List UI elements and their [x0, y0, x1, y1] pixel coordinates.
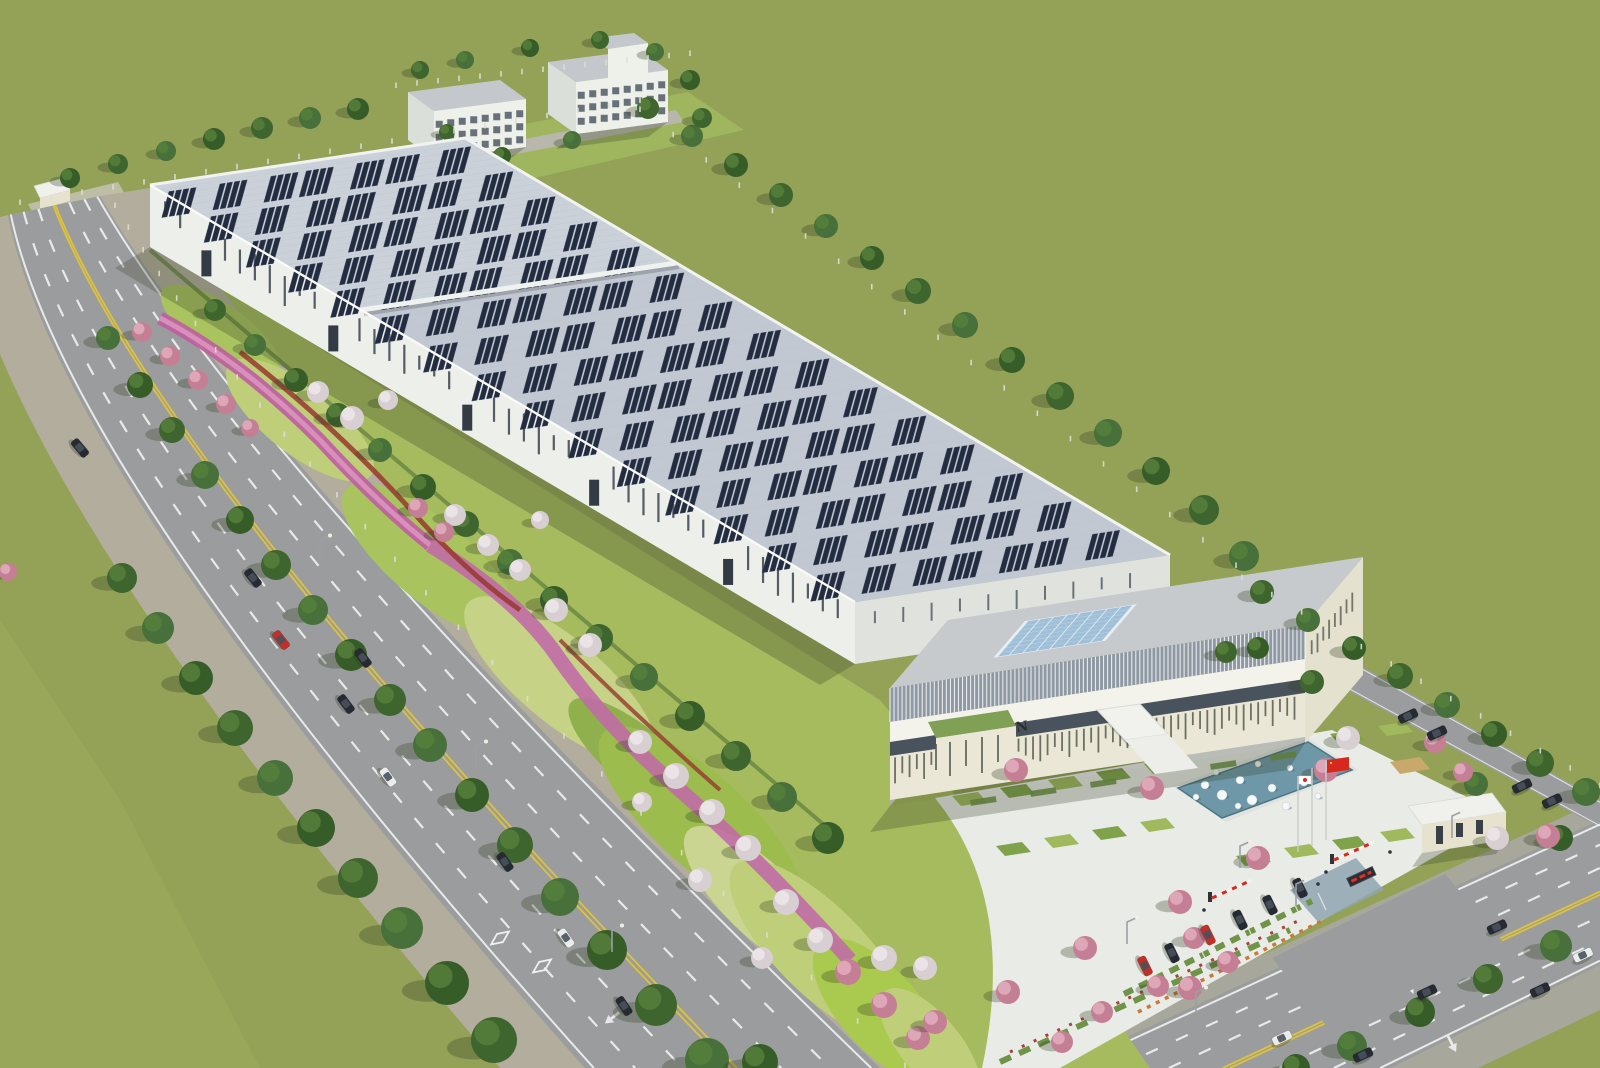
window-slit	[1072, 582, 1074, 599]
lamp-head	[620, 924, 624, 928]
dorm-window	[505, 138, 512, 145]
tree-highlight	[446, 505, 458, 517]
fence-post	[626, 57, 628, 63]
fence-post	[1540, 748, 1542, 754]
fence-post	[811, 975, 813, 981]
window-slit	[792, 573, 794, 603]
fence-post	[491, 660, 493, 666]
window-slit	[837, 599, 839, 618]
tree-highlight	[998, 982, 1011, 995]
tree-highlight	[440, 125, 449, 134]
fence-post	[546, 113, 548, 119]
window-slit	[1068, 731, 1070, 757]
tree-highlight	[775, 891, 789, 905]
window-slit	[987, 594, 989, 610]
tree-highlight	[630, 732, 643, 745]
tree-highlight	[694, 109, 705, 120]
tree-highlight	[436, 523, 447, 534]
fence-post	[425, 590, 427, 596]
dorm-window	[516, 123, 523, 130]
window-slit	[1129, 573, 1131, 588]
window-slit	[901, 756, 903, 773]
tree-highlight	[300, 811, 321, 832]
tree-highlight	[458, 780, 477, 799]
tree-highlight	[342, 408, 355, 421]
window-slit	[1177, 714, 1179, 729]
fence-post	[1331, 627, 1333, 633]
window-slit	[1317, 633, 1319, 652]
tree-highlight	[771, 185, 784, 198]
barrier-post	[1208, 892, 1212, 902]
tree-highlight	[206, 300, 218, 312]
fountain-sphere	[1193, 794, 1199, 800]
tree-highlight	[1338, 728, 1351, 741]
fence-post	[705, 157, 707, 163]
tree-highlight	[193, 463, 208, 478]
tree-highlight	[1001, 349, 1015, 363]
window-slit	[687, 515, 689, 531]
dorm-window	[658, 94, 665, 101]
fence-post	[563, 733, 565, 739]
lamp-head	[1248, 840, 1252, 844]
fence-post	[267, 159, 269, 165]
lamp-head	[1460, 810, 1464, 814]
tree-highlight	[182, 663, 201, 682]
tree-highlight	[1483, 723, 1497, 737]
tree-highlight	[837, 961, 851, 975]
tree-highlight	[474, 1020, 499, 1045]
tree-highlight	[1574, 780, 1589, 795]
fence-post	[1480, 713, 1482, 719]
tree-highlight	[190, 371, 201, 382]
tree-highlight	[590, 933, 612, 955]
tree-highlight	[260, 762, 280, 782]
tree-highlight	[1542, 932, 1560, 950]
fence-post	[174, 174, 176, 180]
window-slit	[874, 611, 876, 623]
tree-highlight	[161, 419, 175, 433]
window-slit	[1286, 698, 1288, 716]
bollard	[1202, 908, 1206, 912]
fence-post	[681, 850, 683, 856]
fence-post	[81, 189, 83, 195]
fence-post	[128, 224, 130, 230]
fence-post	[1136, 487, 1138, 493]
window-slit	[1061, 732, 1063, 751]
tree-highlight	[412, 62, 422, 72]
tree-highlight	[341, 861, 363, 883]
fence-post	[904, 309, 906, 315]
fence-post	[601, 771, 603, 777]
tree-highlight	[873, 947, 887, 961]
tree-highlight	[1455, 763, 1466, 774]
window-slit	[373, 329, 375, 354]
tree-highlight	[301, 108, 313, 120]
tree-highlight	[745, 1046, 765, 1066]
tree-highlight	[144, 614, 162, 632]
dorm-window	[612, 113, 619, 120]
window-slit	[1185, 713, 1187, 739]
window-slit	[657, 493, 659, 522]
tree-highlight	[1344, 638, 1357, 651]
fence-post	[970, 360, 972, 366]
fountain-sphere	[1235, 803, 1241, 809]
dorm-window	[658, 81, 665, 88]
loading-door	[723, 559, 733, 585]
fence-post	[904, 1063, 906, 1068]
window-slit	[1032, 736, 1034, 759]
tree-highlight	[769, 784, 786, 801]
tree-highlight	[205, 129, 217, 141]
window-slit	[1346, 599, 1348, 613]
tree-highlight	[500, 829, 520, 849]
dorm-window	[516, 110, 523, 117]
fence-post	[479, 73, 481, 79]
tree-highlight	[564, 132, 574, 142]
fence-post	[215, 347, 217, 353]
tree-highlight	[1053, 1032, 1065, 1044]
fence-post	[259, 402, 261, 408]
bollard	[1324, 870, 1328, 874]
tree-highlight	[915, 958, 928, 971]
window-slit	[1328, 620, 1330, 639]
window-slit	[1311, 640, 1313, 654]
fence-post	[364, 524, 366, 530]
fence-post	[1235, 563, 1237, 569]
dorm-window	[493, 139, 500, 146]
fence-post	[640, 810, 642, 816]
window-slit	[1322, 627, 1324, 641]
tree-highlight	[1217, 642, 1229, 654]
window-slit	[269, 265, 271, 293]
dorm-window	[578, 118, 585, 125]
fence-post	[158, 271, 160, 277]
tree-highlight	[682, 71, 693, 82]
tree-highlight	[328, 405, 341, 418]
tree-highlight	[1142, 778, 1155, 791]
fence-post	[114, 203, 116, 209]
window-slit	[894, 757, 896, 783]
fountain-sphere	[1268, 784, 1276, 792]
dorm-window	[601, 115, 608, 122]
dorm-window	[493, 126, 500, 133]
tree-highlight	[1389, 665, 1403, 679]
window-slit	[538, 424, 540, 454]
window-slit	[777, 568, 779, 596]
fence-post	[1202, 537, 1204, 543]
fence-post	[143, 179, 145, 185]
fence-post	[605, 60, 607, 65]
tree-highlight	[499, 551, 513, 565]
fence-post	[527, 696, 529, 702]
tree-highlight	[1093, 1002, 1105, 1014]
tree-highlight	[634, 793, 645, 804]
dorm-window	[459, 118, 466, 125]
dorm-window	[482, 141, 489, 148]
fence-post	[236, 164, 238, 170]
fountain-sphere	[1247, 795, 1257, 805]
dorm2-tower	[608, 43, 648, 89]
fence-post	[1420, 679, 1422, 685]
fence-post	[689, 51, 691, 57]
tree-highlight	[647, 44, 657, 54]
window-slit	[1294, 697, 1296, 720]
tree-highlight	[1006, 760, 1019, 773]
tree-highlight	[907, 280, 921, 294]
tree-highlight	[683, 126, 695, 138]
dorm-window	[516, 136, 523, 143]
loading-door	[328, 325, 338, 351]
window-slit	[930, 752, 932, 765]
tree-highlight	[98, 328, 111, 341]
tree-highlight	[286, 370, 299, 383]
fence-post	[500, 71, 502, 77]
fence-post	[838, 259, 840, 265]
tree-highlight	[1339, 1033, 1356, 1050]
window-slit	[1334, 613, 1336, 627]
fence-post	[284, 431, 286, 437]
window-slit	[493, 398, 495, 422]
tree-highlight	[1170, 892, 1183, 905]
fence-post	[766, 932, 768, 938]
tree-highlight	[349, 99, 361, 111]
fence-post	[336, 492, 338, 498]
dorm-window	[658, 107, 665, 114]
window-slit	[1090, 728, 1092, 743]
window-slit	[1076, 730, 1078, 747]
citizen-factory-aerial-rendering: CITIZEN	[0, 0, 1600, 1068]
tree-highlight	[753, 948, 765, 960]
tree-highlight	[228, 508, 243, 523]
tree-highlight	[300, 597, 317, 614]
barrier-post	[1330, 854, 1334, 864]
tree-highlight	[1048, 384, 1063, 399]
fence-post	[857, 1018, 859, 1024]
tree-highlight	[1219, 952, 1231, 964]
tree-highlight	[814, 824, 832, 842]
tree-highlight	[246, 335, 258, 347]
fence-post	[1070, 436, 1072, 442]
fence-post	[19, 200, 21, 206]
fence-post	[515, 118, 517, 124]
dorm-window	[482, 128, 489, 135]
lamp-head	[1304, 878, 1308, 882]
fence-post	[1003, 385, 1005, 391]
window-slit	[1044, 586, 1046, 600]
tree-highlight	[263, 552, 280, 569]
dorm-window	[612, 100, 619, 107]
fence-post	[329, 149, 331, 155]
dorm-window	[493, 113, 500, 120]
fence-post	[1241, 575, 1243, 581]
fence-post	[639, 107, 641, 113]
dorm-window	[589, 90, 596, 97]
dorm-window	[601, 89, 608, 96]
fence-post	[195, 321, 197, 327]
window-slit	[358, 318, 360, 341]
lamp-head	[484, 740, 488, 744]
fence-post	[437, 78, 439, 84]
fence-post	[176, 295, 178, 301]
window-slit	[553, 435, 555, 450]
tree-highlight	[1528, 751, 1543, 766]
dorm-window	[612, 87, 619, 94]
window-slit	[642, 488, 644, 515]
tree-highlight	[218, 395, 229, 406]
tree-highlight	[1180, 978, 1193, 991]
fence-post	[1450, 696, 1452, 702]
tree-highlight	[1436, 694, 1450, 708]
window-slit	[931, 603, 933, 621]
tree-highlight	[457, 52, 467, 62]
gatehouse-window	[1456, 823, 1463, 837]
tree-highlight	[1144, 459, 1159, 474]
dorm-window	[589, 116, 596, 123]
window-slit	[1206, 710, 1208, 733]
fence-post	[298, 154, 300, 160]
tree-highlight	[723, 743, 740, 760]
window-slit	[702, 520, 704, 538]
fence-post	[50, 194, 52, 200]
tree-highlight	[428, 964, 452, 988]
tree-highlight	[1487, 828, 1500, 841]
tree-highlight	[253, 118, 265, 130]
fence-post	[394, 557, 396, 563]
japan-flag	[1299, 776, 1311, 784]
fence-post	[458, 76, 460, 82]
tree-highlight	[862, 248, 875, 261]
fence-post	[484, 123, 486, 129]
dorm-window	[578, 92, 585, 99]
tree-highlight	[109, 565, 126, 582]
tree-highlight	[410, 499, 421, 510]
fence-post	[772, 208, 774, 214]
dorm-window	[589, 103, 596, 110]
fence-post	[563, 64, 565, 70]
fence-post	[672, 132, 674, 138]
window-slit	[1257, 702, 1259, 724]
tree-highlight	[532, 512, 542, 522]
window-slit	[1054, 733, 1056, 747]
window-slit	[1228, 707, 1230, 721]
tree-highlight	[416, 730, 435, 749]
tree-highlight	[412, 476, 426, 490]
tree-highlight	[162, 347, 173, 358]
window-slit	[1098, 727, 1100, 753]
window-slit	[747, 546, 749, 570]
dorm-window	[635, 84, 642, 91]
fence-post	[1271, 592, 1273, 598]
tree-highlight	[370, 440, 383, 453]
dorm-window	[624, 86, 631, 93]
fence-post	[360, 143, 362, 149]
window-slit	[923, 753, 925, 779]
fence-post	[236, 374, 238, 380]
window-slit	[1018, 739, 1020, 752]
gatehouse-door	[1436, 826, 1443, 844]
fence-post	[647, 55, 649, 61]
tree-highlight	[816, 216, 829, 229]
fence-post	[205, 169, 207, 175]
aerial-rendering-stage: CITIZEN	[0, 0, 1600, 1068]
window-slit	[1235, 706, 1237, 725]
dorm-window	[470, 116, 477, 123]
bollard	[1316, 882, 1320, 886]
window-slit	[1250, 703, 1252, 720]
window-slit	[1170, 715, 1172, 737]
fence-post	[453, 128, 455, 134]
tree-highlight	[129, 374, 143, 388]
window-slit	[284, 276, 286, 306]
bollard	[1388, 850, 1392, 854]
fence-post	[1510, 731, 1512, 737]
tree-highlight	[1075, 938, 1088, 951]
fence-post	[1301, 609, 1303, 615]
fence-post	[937, 335, 939, 341]
tree-highlight	[580, 635, 593, 648]
window-slit	[1340, 606, 1342, 625]
fence-post	[723, 891, 725, 897]
fence-post	[458, 624, 460, 630]
window-slit	[314, 292, 316, 309]
fence-post	[584, 62, 586, 68]
fence-post	[542, 67, 544, 73]
window-slit	[1272, 700, 1274, 726]
tree-highlight	[665, 765, 679, 779]
tree-highlight	[479, 535, 491, 547]
tree-highlight	[1298, 610, 1311, 623]
tree-highlight	[1252, 582, 1265, 595]
dorm-window	[470, 129, 477, 136]
tree-highlight	[134, 323, 145, 334]
tree-highlight	[873, 994, 887, 1008]
tree-highlight	[1191, 497, 1208, 514]
tree-highlight	[925, 1012, 938, 1025]
window-slit	[508, 409, 510, 435]
fence-post	[391, 138, 393, 144]
fence-post	[871, 284, 873, 290]
window-slit	[1039, 735, 1041, 761]
tree-highlight	[0, 564, 10, 574]
china-flag-star	[1330, 762, 1332, 764]
fountain-sphere	[1282, 802, 1290, 810]
window-slit	[612, 467, 614, 490]
tree-highlight	[309, 382, 321, 394]
tree-highlight	[544, 880, 565, 901]
tree-highlight	[1231, 543, 1248, 560]
tree-highlight	[1538, 826, 1551, 839]
tree-highlight	[62, 169, 73, 180]
dorm-window	[505, 112, 512, 119]
window-slit	[902, 607, 904, 622]
tree-highlight	[158, 142, 169, 153]
fence-post	[112, 184, 114, 190]
fence-post	[739, 183, 741, 189]
tree-highlight	[726, 155, 739, 168]
fence-post	[805, 233, 807, 239]
tree-highlight	[110, 155, 121, 166]
tree-highlight	[677, 703, 694, 720]
fence-post	[309, 461, 311, 467]
tree-highlight	[380, 391, 391, 402]
fence-post	[577, 108, 579, 114]
window-slit	[1105, 725, 1107, 738]
window-slit	[1083, 729, 1085, 751]
tree-highlight	[592, 32, 602, 42]
window-slit	[1016, 590, 1018, 609]
tree-highlight	[1185, 928, 1197, 940]
window-slit	[916, 754, 918, 769]
